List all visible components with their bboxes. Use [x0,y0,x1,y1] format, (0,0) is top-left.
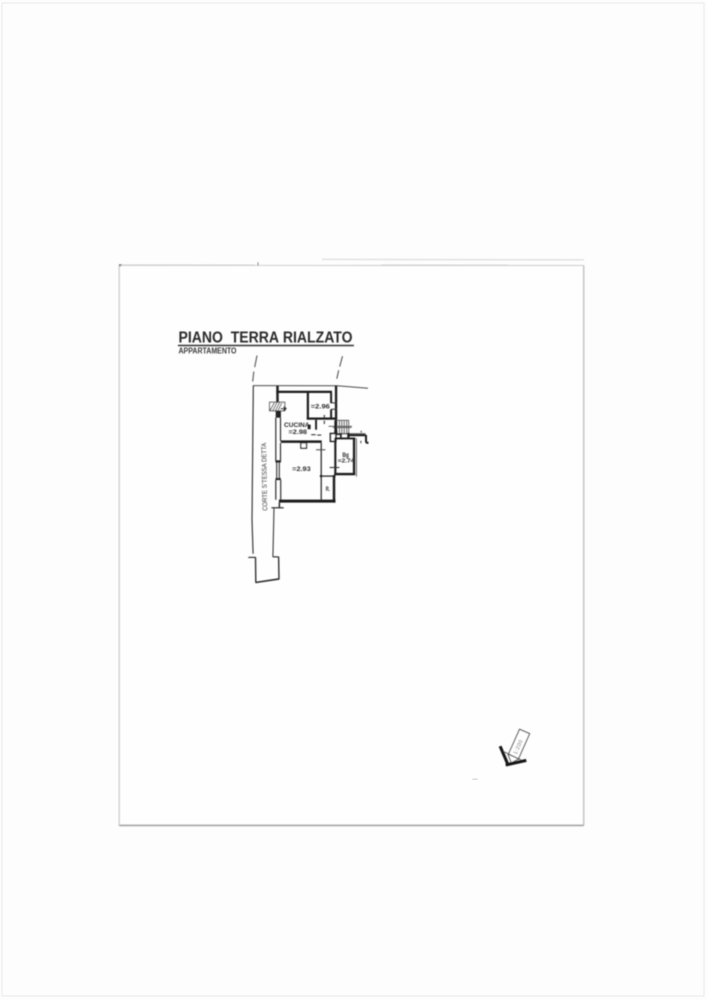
svg-text:APPARTAMENTO: APPARTAMENTO [179,346,237,355]
svg-text:PIANO TERRA RIALZATO: PIANO TERRA RIALZATO [179,329,353,346]
svg-text:=2.96: =2.96 [311,403,331,410]
svg-text:=2.98: =2.98 [289,429,308,436]
svg-text:R.: R. [326,487,330,493]
svg-text:CUCINA: CUCINA [284,422,310,429]
svg-text:=2.74: =2.74 [338,459,355,465]
svg-text:CORTE S’TESSA DETTA: CORTE S’TESSA DETTA [261,442,269,511]
svg-text:=2.93: =2.93 [292,466,311,473]
